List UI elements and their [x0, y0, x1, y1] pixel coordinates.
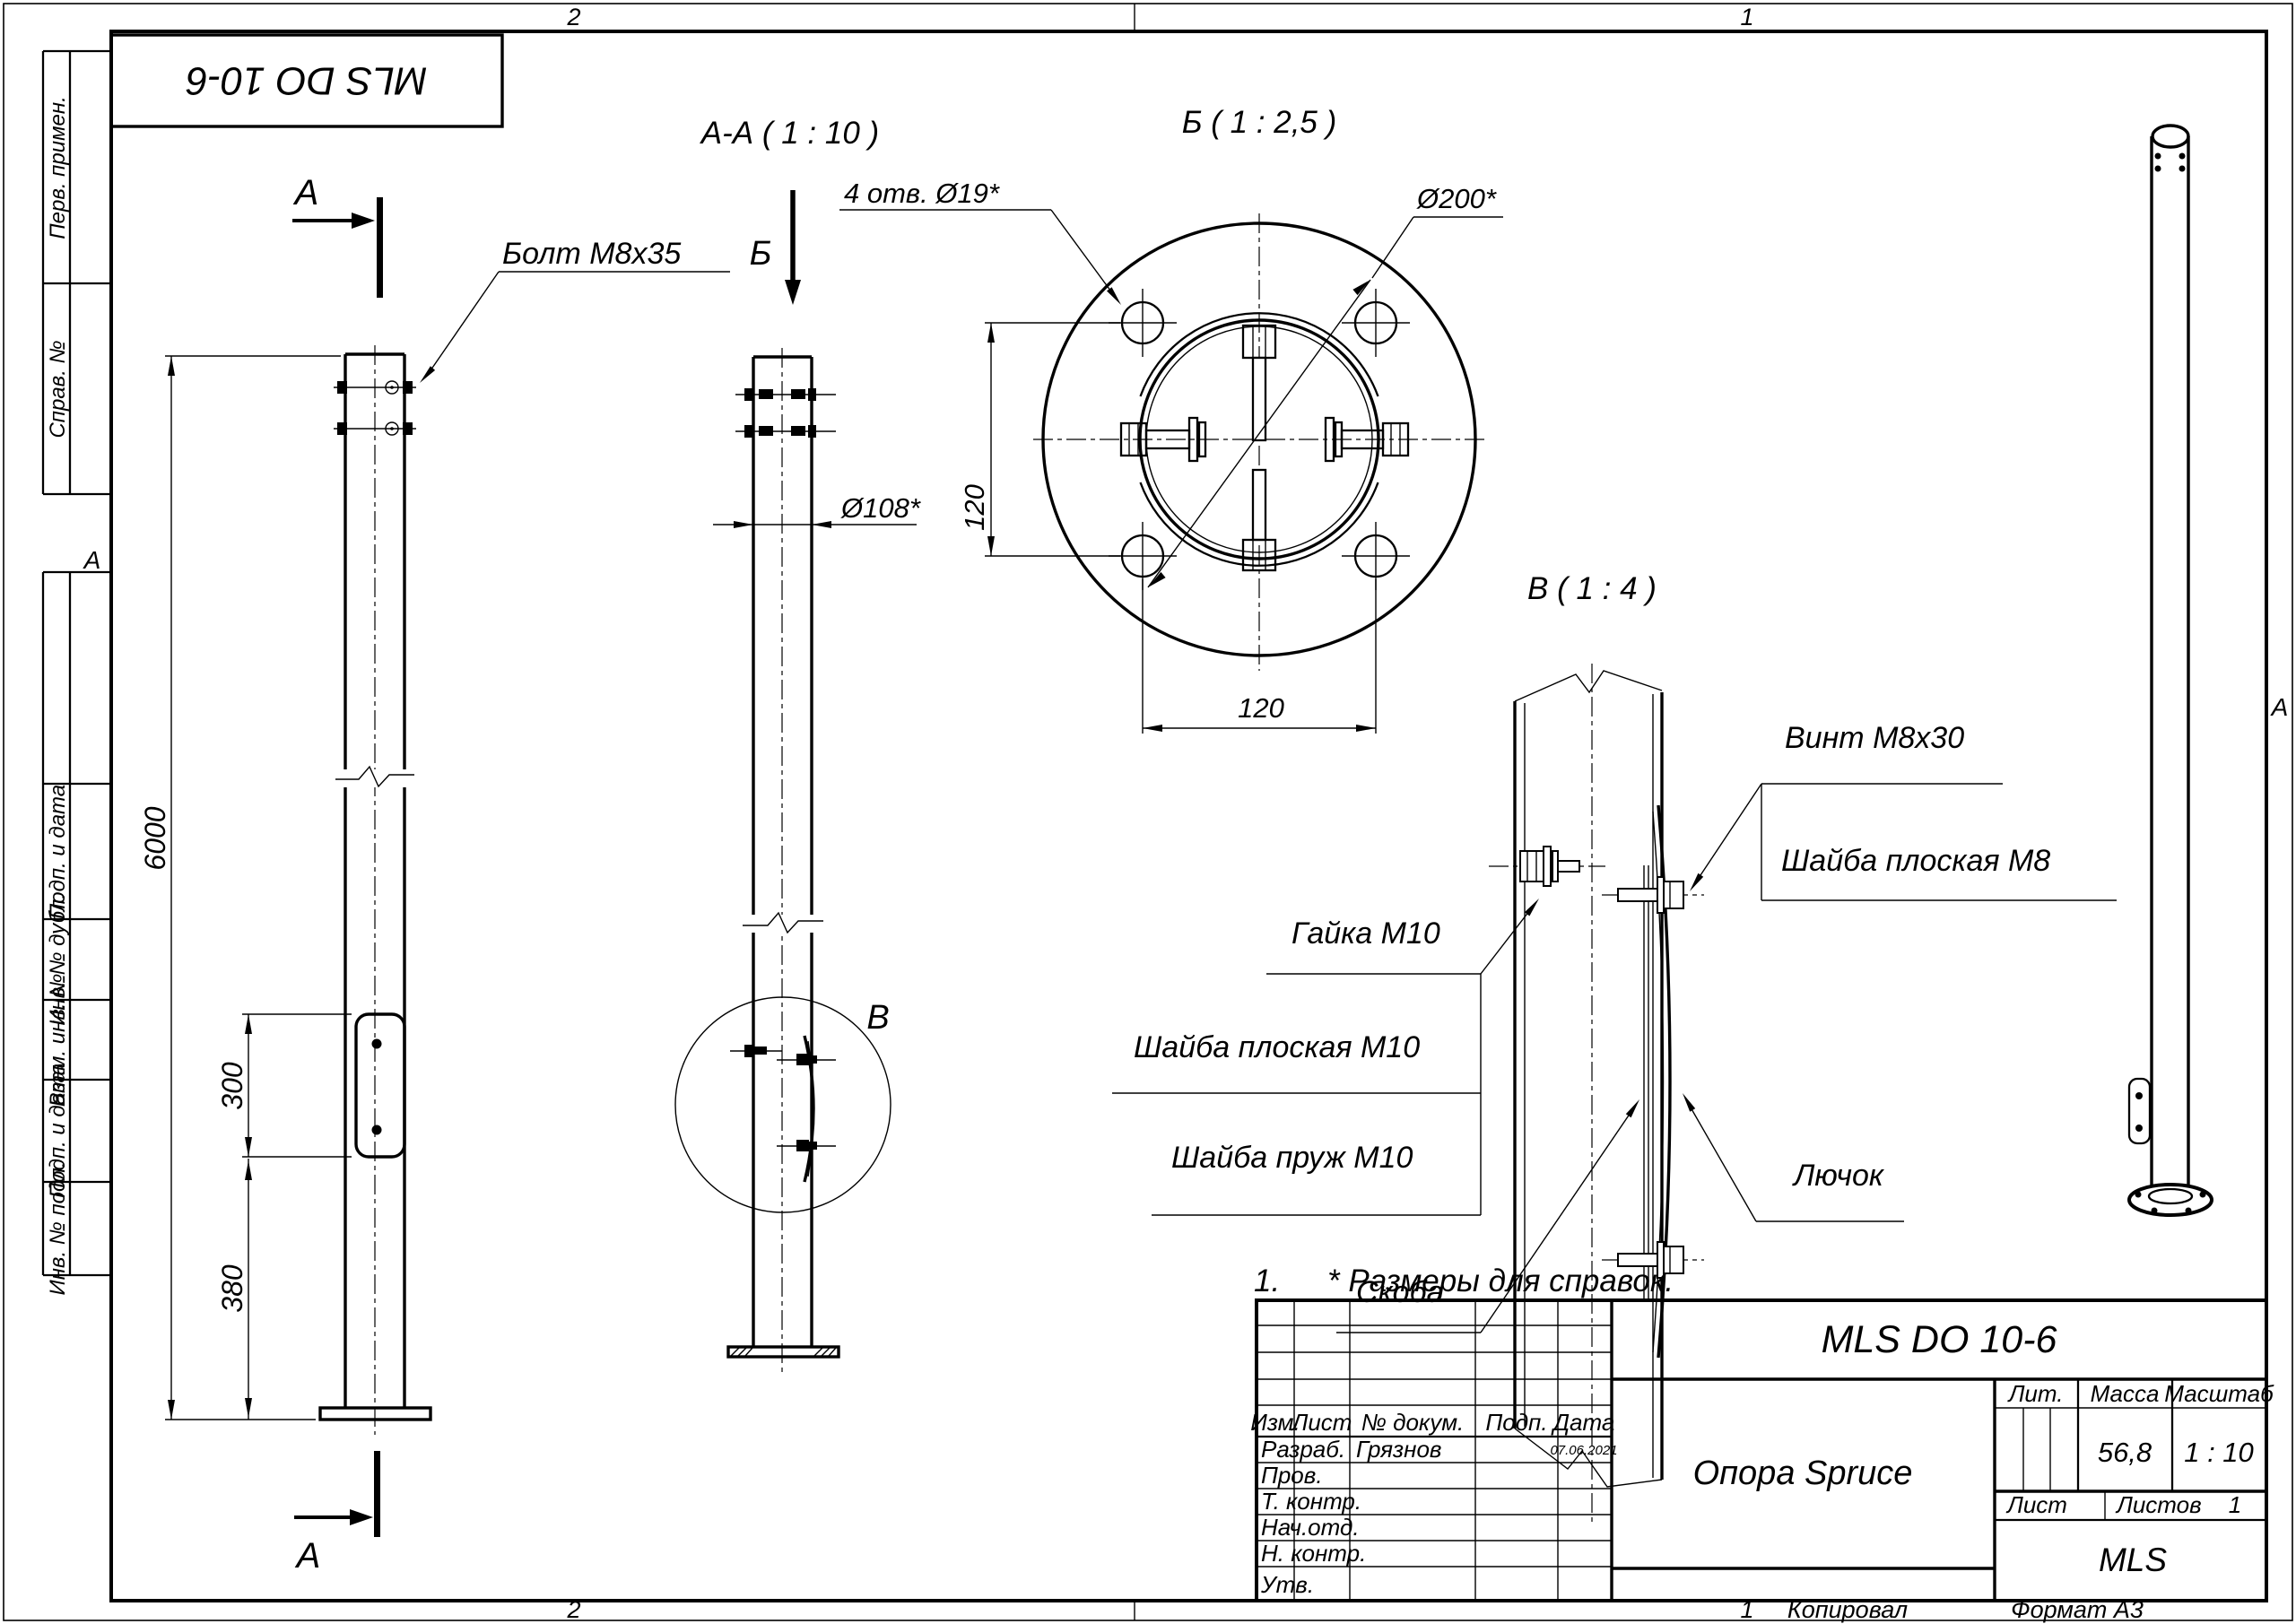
wall-stud: [1489, 847, 1605, 886]
sidebar-label: Инв. № подл.: [46, 1162, 70, 1296]
section-marker-a: А: [295, 1536, 321, 1576]
note: 1. * Размеры для справок.: [1254, 1264, 1674, 1298]
shayba-pruzh-callout: Шайба пруж М10: [1171, 1141, 1413, 1175]
tb-massa-value: 56,8: [2098, 1437, 2152, 1468]
tb-org: MLS: [2099, 1541, 2167, 1578]
dim-120-h: 120: [1238, 692, 1284, 724]
tb-header-list: Лист: [1291, 1409, 1352, 1436]
shayba-m10-callout: Шайба плоская М10: [1134, 1030, 1420, 1064]
section-marker-b: Б: [750, 235, 772, 273]
tb-row-label: Разраб.: [1261, 1436, 1345, 1463]
tb-massa-header: Масса: [2091, 1380, 2160, 1407]
zone-letter-left: А: [83, 546, 101, 574]
hatch-opening: [356, 1014, 404, 1157]
note-text: * Размеры для справок.: [1327, 1264, 1674, 1298]
view-title: Б ( 1 : 2,5 ): [1182, 105, 1337, 140]
tb-row-label: Н. контр.: [1261, 1540, 1366, 1567]
tb-row-date: 07.06.2021: [1550, 1443, 1617, 1458]
tb-row-label: Утв.: [1260, 1571, 1314, 1598]
tb-row-name: Грязнов: [1356, 1436, 1441, 1463]
detail-b-view: Б ( 1 : 2,5 ): [839, 105, 1503, 734]
vint-callout: Винт М8х30: [1785, 721, 1964, 755]
tb-scale-header: Масштаб: [2164, 1380, 2274, 1407]
view-title: А-А ( 1 : 10 ): [700, 116, 879, 151]
zone-number: 2: [566, 1596, 580, 1623]
tb-part-name: Опора Spruce: [1693, 1455, 1913, 1492]
dim-120-v: 120: [959, 484, 990, 531]
note-number: 1.: [1254, 1264, 1280, 1298]
dim-300: 300: [216, 1062, 248, 1110]
dim-dia-108: Ø108*: [840, 492, 921, 524]
tb-scale-value: 1 : 10: [2184, 1437, 2254, 1468]
top-left-stamp: MLS DO 10-6: [111, 35, 502, 126]
drawing-sheet: 2 1 2 1 Копировал Формат А3 А А MLS DO 1…: [0, 0, 2296, 1624]
clamp-assembly: [1121, 326, 1408, 570]
tb-row-label: Пров.: [1261, 1462, 1323, 1489]
zone-letter-right: А: [2270, 693, 2289, 721]
dim-380: 380: [216, 1264, 248, 1313]
sidebar-stamps: Перв. примен. Справ. № Подп. и дата Инв.…: [43, 51, 111, 1295]
section-marker-a: А: [293, 173, 319, 213]
sidebar-label: Справ. №: [46, 340, 70, 438]
outer-dia-callout: Ø200*: [1416, 183, 1497, 214]
tb-sheets-label: Листов: [2115, 1491, 2202, 1518]
gayka-callout: Гайка М10: [1291, 916, 1440, 951]
holes-callout: 4 отв. Ø19*: [844, 178, 1000, 209]
detail-marker-v: В: [866, 999, 889, 1037]
tb-row-label: Т. контр.: [1261, 1488, 1361, 1515]
zone-number: 1: [1740, 4, 1753, 30]
tb-lit-header: Лит.: [2007, 1380, 2064, 1407]
tb-header-data: Дата: [1551, 1409, 1615, 1436]
lyuchok-callout: Лючок: [1792, 1159, 1885, 1193]
tb-header-podp: Подп.: [1485, 1409, 1547, 1436]
inner-frame: [111, 31, 2266, 1601]
section-aa-view: А-А ( 1 : 10 ) Б Ø108*: [675, 116, 921, 1376]
tb-row-label: Нач.отд.: [1261, 1514, 1360, 1541]
tb-doc-number: MLS DO 10-6: [1822, 1318, 2057, 1361]
title-block: Изм. Лист № докум. Подп. Дата Разраб. Гр…: [1250, 1300, 2274, 1601]
tb-header-doc: № докум.: [1361, 1409, 1465, 1436]
view-title: В ( 1 : 4 ): [1527, 571, 1657, 606]
shayba-m8-callout: Шайба плоская М8: [1781, 844, 2050, 878]
stamp-text: MLS DO 10-6: [186, 59, 428, 103]
dim-6000: 6000: [139, 806, 171, 870]
sidebar-label: Перв. примен.: [46, 96, 70, 239]
pole-top-opening: [2152, 126, 2188, 147]
iso-view: [2129, 126, 2212, 1215]
tb-sheets-value: 1: [2229, 1491, 2241, 1518]
bolt-callout: Болт М8х35: [502, 237, 681, 271]
iso-hatch: [2129, 1079, 2150, 1143]
front-view: 6000 300 380 Болт М8х35 А А: [139, 173, 730, 1576]
zone-number: 2: [566, 4, 580, 30]
tb-sheet-label: Лист: [2005, 1491, 2067, 1518]
